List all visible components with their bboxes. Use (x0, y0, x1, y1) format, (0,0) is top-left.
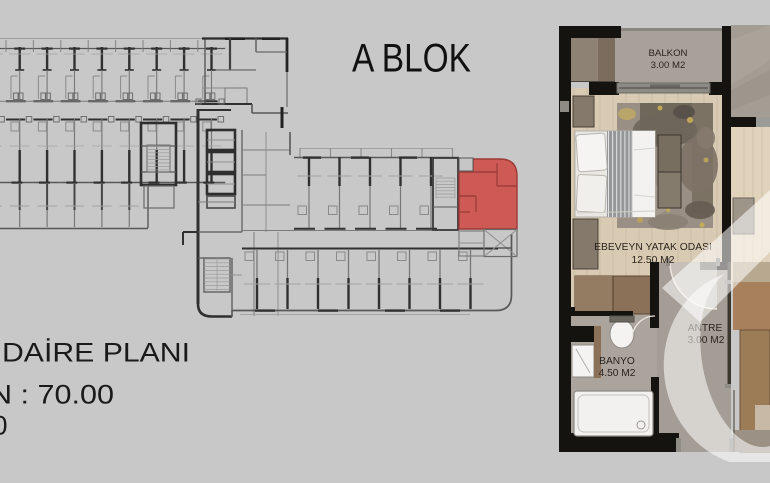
svg-text:4.50 M2: 4.50 M2 (599, 368, 636, 379)
svg-text:DAİRE PLANI: DAİRE PLANI (2, 337, 190, 368)
svg-text:3.00 M2: 3.00 M2 (651, 60, 686, 71)
svg-text:12.50 M2: 12.50 M2 (632, 255, 675, 266)
svg-text:N : 70.00: N : 70.00 (0, 380, 114, 410)
svg-text:A BLOK: A BLOK (352, 37, 471, 81)
svg-text:0: 0 (0, 411, 8, 441)
svg-text:BANYO: BANYO (599, 356, 635, 367)
svg-text:BALKON: BALKON (649, 48, 688, 59)
svg-text:EBEVEYN YATAK ODASI: EBEVEYN YATAK ODASI (594, 242, 712, 253)
